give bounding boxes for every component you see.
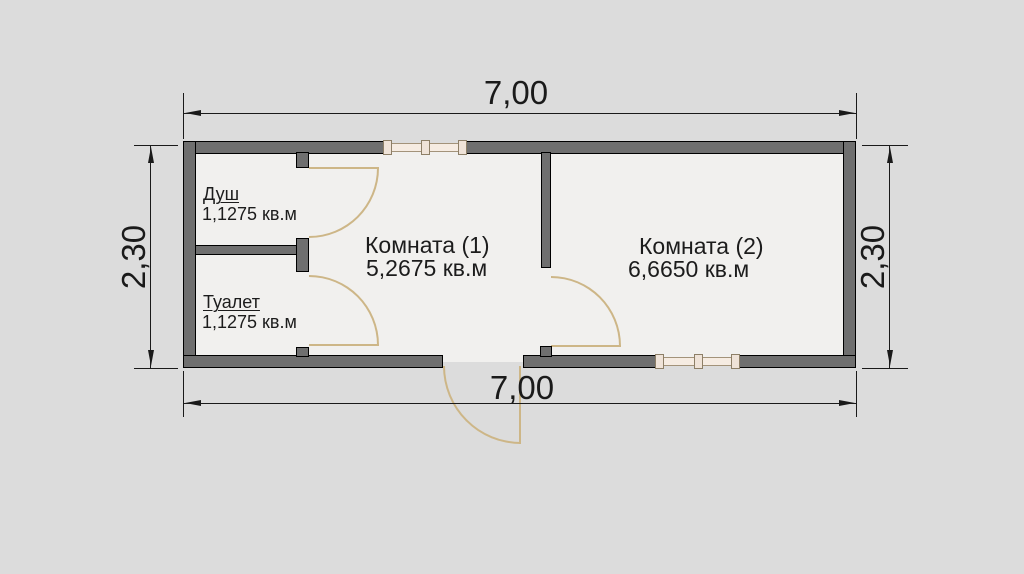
bottom-arrow-left-icon [185, 400, 201, 406]
right-arrow-down-icon [887, 350, 893, 366]
jamb-middle [296, 238, 309, 272]
dush-room-area: 1,1275 кв.м [202, 204, 297, 224]
right-arrow-up-icon [887, 147, 893, 163]
bottom-wall-right-segment [739, 355, 856, 368]
bottom-arrow-right-icon [839, 400, 855, 406]
right-tick-top [862, 145, 908, 146]
left-tick-bottom [134, 368, 178, 369]
top-arrow-left-icon [185, 110, 201, 116]
top-extension-line-right [856, 93, 857, 139]
floor-plan: 7,00 7,00 2,30 2,30 Душ 1,1275 кв.м Туал… [0, 0, 1024, 574]
bottom-extension-line-right [856, 371, 857, 417]
left-arrow-up-icon [148, 147, 154, 163]
bottom-window-mullion-left [655, 354, 664, 369]
room2-area: 6,6650 кв.м [628, 257, 749, 282]
partition-dush-tualet [195, 245, 299, 255]
jamb-bottom-small [296, 347, 309, 357]
room1-area: 5,2675 кв.м [366, 256, 487, 281]
top-window-mullion-right [458, 140, 467, 155]
jamb-top [296, 152, 309, 168]
top-wall-right-segment [466, 141, 856, 154]
right-tick-bottom [862, 368, 908, 369]
top-extension-line-left [183, 93, 184, 139]
partition-rooms [541, 152, 551, 268]
top-window-mullion-left [383, 140, 392, 155]
top-dimension-label: 7,00 [421, 76, 611, 110]
tualet-room-area: 1,1275 кв.м [202, 312, 297, 332]
top-arrow-right-icon [839, 110, 855, 116]
top-window-mullion-middle [421, 140, 430, 155]
jamb-partition-bottom [540, 346, 552, 357]
bottom-window-mullion-middle [694, 354, 703, 369]
left-arrow-down-icon [148, 350, 154, 366]
right-dimension-label: 2,30 [856, 217, 890, 297]
left-dimension-label: 2,30 [117, 217, 151, 297]
top-wall-left-segment [183, 141, 384, 154]
bottom-extension-line-left [183, 371, 184, 417]
left-tick-top [134, 145, 178, 146]
bottom-dimension-label: 7,00 [427, 371, 617, 405]
bottom-wall-left-segment [183, 355, 443, 368]
top-dimension-line [183, 113, 856, 114]
tualet-room-name: Туалет [203, 292, 260, 312]
dush-room-name: Душ [203, 184, 239, 204]
bottom-window-mullion-right [731, 354, 740, 369]
